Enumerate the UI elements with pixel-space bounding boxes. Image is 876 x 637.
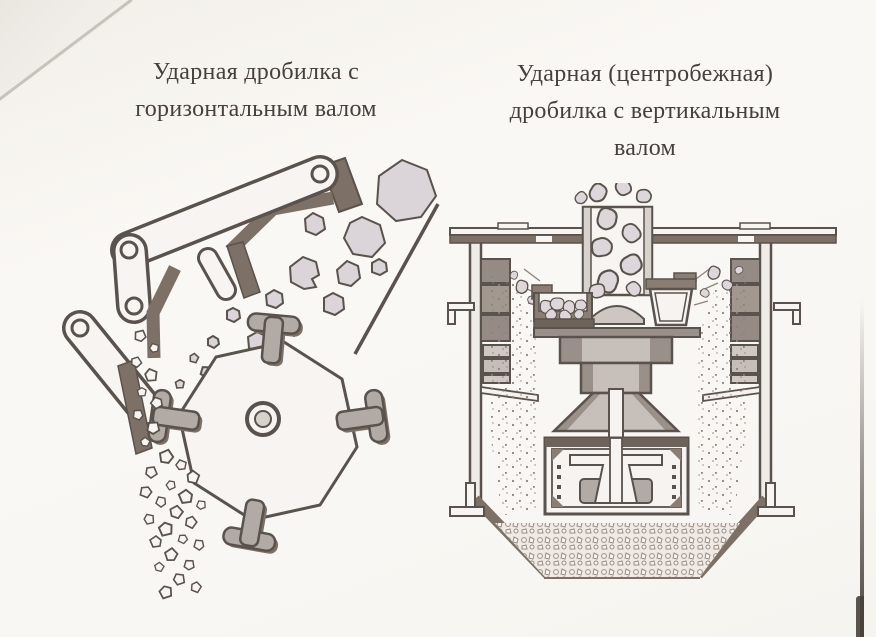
rotor bbox=[148, 313, 392, 555]
caption-line: горизонтальным валом bbox=[62, 91, 450, 128]
drive-housing bbox=[545, 438, 688, 514]
horizontal-crusher-diagram bbox=[50, 146, 450, 616]
figure-horizontal-crusher: Ударная дробилка с горизонтальным валом bbox=[50, 54, 450, 616]
caption-line: Ударная дробилка с bbox=[62, 54, 450, 91]
rotor-table bbox=[532, 273, 700, 438]
page-edge-shadow-bottom bbox=[856, 596, 864, 637]
page-edge-shadow bbox=[860, 300, 864, 637]
caption-horizontal-crusher: Ударная дробилка с горизонтальным валом bbox=[50, 54, 450, 128]
vertical-shaft bbox=[610, 438, 622, 503]
feed-tube bbox=[573, 183, 652, 299]
vertical-crusher-diagram bbox=[440, 183, 845, 623]
product-pile bbox=[495, 523, 740, 577]
caption-line: Ударная (центробежная) bbox=[445, 56, 845, 93]
scanned-page: Ударная дробилка с горизонтальным валом bbox=[0, 0, 876, 637]
caption-line: дробилка с вертикальным bbox=[445, 93, 845, 130]
figure-vertical-crusher: Ударная (центробежная) дробилка с вертик… bbox=[445, 56, 845, 623]
caption-line: валом bbox=[445, 130, 845, 167]
caption-vertical-crusher: Ударная (центробежная) дробилка с вертик… bbox=[445, 56, 845, 167]
